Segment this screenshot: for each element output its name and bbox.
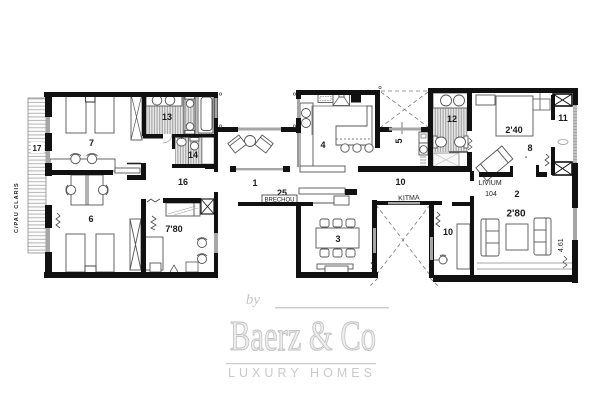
- svg-text:7'80: 7'80: [165, 224, 182, 234]
- svg-text:4: 4: [320, 140, 325, 150]
- svg-text:5: 5: [394, 138, 404, 143]
- svg-text:2'40: 2'40: [505, 125, 522, 135]
- svg-text:11: 11: [558, 113, 568, 123]
- svg-text:C/PAU CLARIS: C/PAU CLARIS: [14, 182, 20, 233]
- svg-text:8: 8: [527, 143, 532, 153]
- svg-text:2'80: 2'80: [506, 209, 526, 220]
- svg-text:13: 13: [162, 112, 172, 122]
- svg-text:6: 6: [88, 214, 93, 224]
- svg-text:4.61: 4.61: [558, 238, 565, 252]
- svg-text:10: 10: [443, 227, 453, 237]
- svg-text:Baerz & Co: Baerz & Co: [230, 314, 376, 360]
- svg-text:16: 16: [178, 177, 188, 187]
- svg-text:14: 14: [188, 150, 198, 160]
- svg-text:by: by: [246, 292, 261, 308]
- svg-text:104: 104: [485, 191, 497, 198]
- svg-text:17: 17: [33, 144, 42, 153]
- svg-text:7: 7: [89, 138, 94, 148]
- svg-text:1: 1: [252, 178, 257, 188]
- svg-text:3: 3: [335, 234, 340, 244]
- svg-text:12: 12: [447, 114, 457, 124]
- svg-text:LIVIUM: LIVIUM: [478, 180, 502, 187]
- svg-text:2: 2: [514, 189, 519, 199]
- svg-text:10: 10: [395, 177, 405, 187]
